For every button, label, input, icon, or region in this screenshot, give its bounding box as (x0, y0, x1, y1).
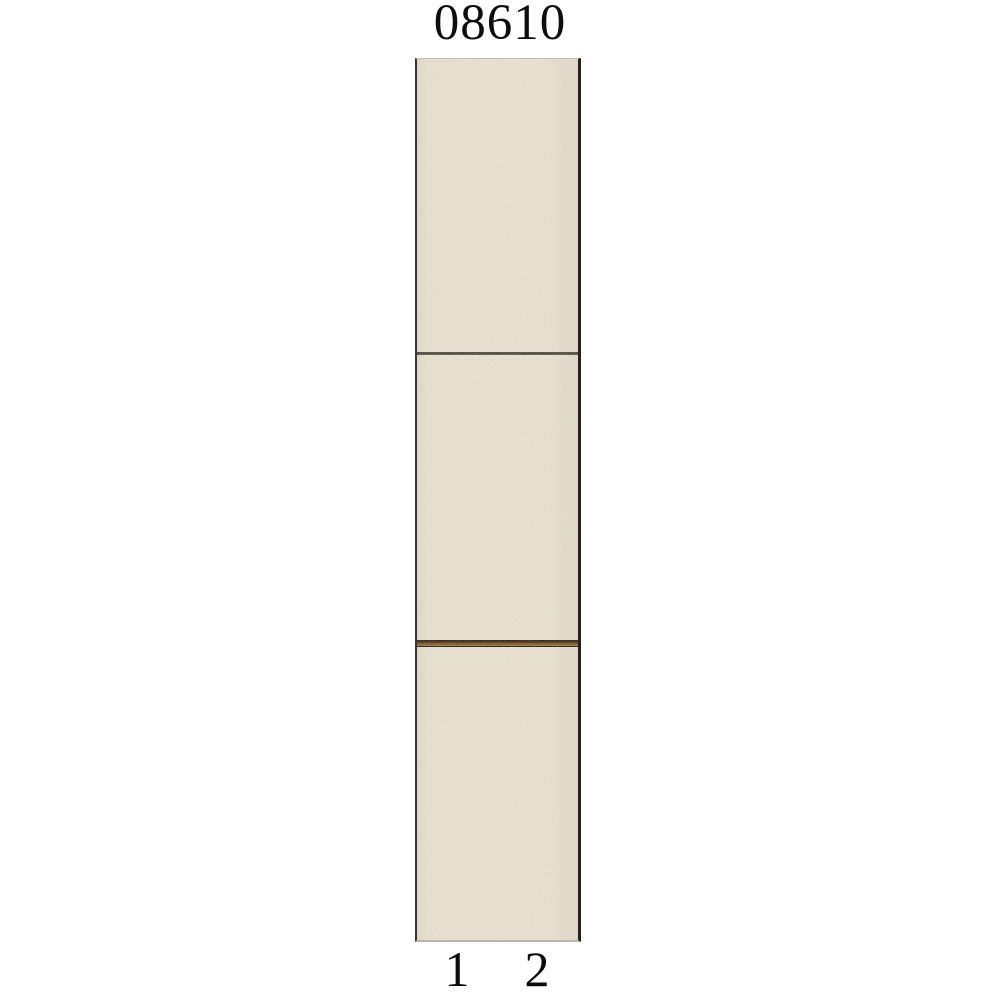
scale-label-1: 1 (427, 944, 487, 994)
panel-trim-band (417, 640, 578, 647)
article-number: 08610 (0, 0, 1000, 49)
wallpaper-panel-sample (415, 58, 581, 942)
panel-section-top (417, 59, 578, 352)
panel-section-middle (417, 355, 578, 640)
catalog-image: 08610 1 2 (0, 0, 1000, 1000)
panel-sections (417, 59, 578, 940)
panel-section-bottom (417, 647, 578, 940)
scale-label-2: 2 (507, 944, 567, 994)
